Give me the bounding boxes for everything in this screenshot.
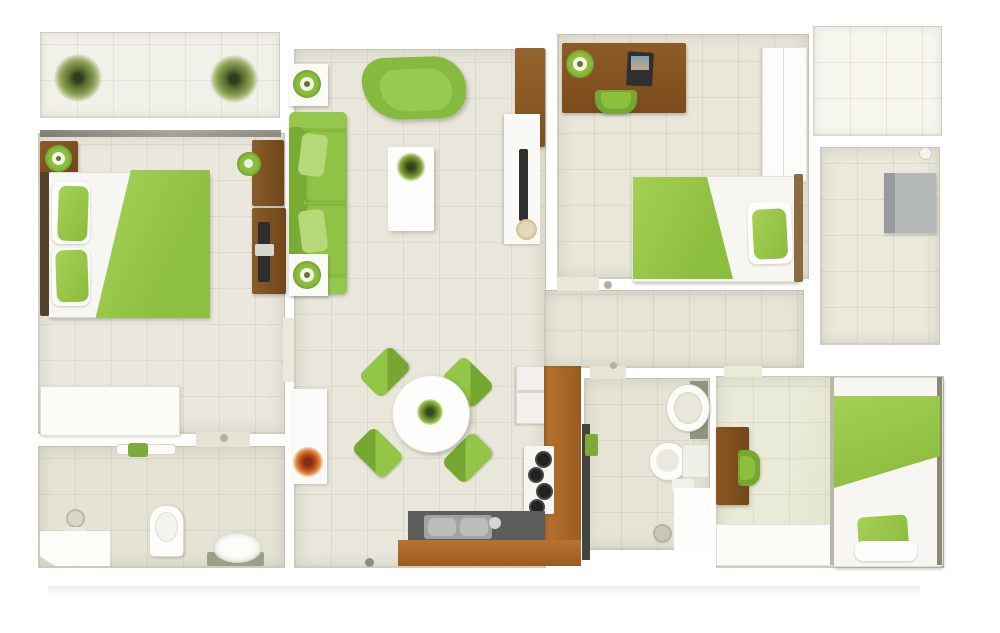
kitchen-sink-basin xyxy=(460,518,488,536)
dining-table-plant xyxy=(417,399,443,425)
bedroom2-desk-chair-seat xyxy=(601,92,631,109)
entry-door-knob xyxy=(365,558,374,567)
bathc-toilet-tank xyxy=(682,444,709,478)
utility-door-knob xyxy=(919,147,932,160)
living-sofa-pillow xyxy=(298,133,329,178)
master-curtain-rail xyxy=(40,130,281,137)
bedroom2-bed-frame xyxy=(794,174,803,282)
utility-cabinet-side xyxy=(884,173,895,233)
bath-left-towel xyxy=(128,443,148,457)
master-pillow-green xyxy=(57,185,89,241)
living-lamp-top-dot xyxy=(304,81,310,87)
kitchen-faucet xyxy=(489,517,501,529)
bath-left-sink-basin xyxy=(213,532,262,563)
master-lamp-top-dot xyxy=(56,156,61,161)
floor-corridor xyxy=(544,290,804,368)
door-opening-bedroom-bottom-right xyxy=(724,366,762,377)
bedroom3-desk-chair-seat xyxy=(740,456,755,480)
door-opening-bathroom-center xyxy=(590,366,626,379)
master-tv-bracket xyxy=(255,244,274,256)
living-coffee-table-plant xyxy=(396,152,426,182)
entry-flower-vase xyxy=(292,446,324,478)
bathc-basin-inner xyxy=(674,392,702,424)
bedroom3-closet xyxy=(716,524,838,566)
bedroom2-door-knob xyxy=(604,281,612,289)
bath-left-corner-block xyxy=(40,531,110,566)
bathc-towel xyxy=(585,434,598,456)
bedroom3-bed-frame-left xyxy=(830,377,834,565)
kitchen-burner xyxy=(528,467,544,483)
living-decor-bowl xyxy=(516,219,537,240)
bedroom2-wardrobe-line xyxy=(783,48,784,179)
master-dresser-lamp-dot xyxy=(244,159,253,168)
bathc-wall-block xyxy=(674,488,710,550)
balcony-plant xyxy=(54,54,102,102)
bath-left-toilet-seat xyxy=(155,512,178,542)
floor-plan xyxy=(0,0,1000,633)
master-bed-headboard xyxy=(40,172,49,316)
bedroom2-pillow-green xyxy=(752,208,789,260)
floor-balcony-top-right xyxy=(813,26,942,136)
kitchen-burner xyxy=(535,451,552,468)
plan-ground-shadow xyxy=(48,586,920,596)
master-door-knob xyxy=(220,434,228,442)
living-sofa-arm-top xyxy=(289,112,347,128)
master-wardrobe xyxy=(40,386,180,436)
bathc-shower-drain xyxy=(653,524,672,543)
kitchen-fridge-line xyxy=(518,390,545,393)
bath-left-shower-drain xyxy=(66,509,85,528)
living-chaise-seat xyxy=(379,68,452,112)
master-pillow-green xyxy=(55,249,89,302)
kitchen-burner xyxy=(536,483,553,500)
bedroom2-laptop-screen xyxy=(631,56,649,70)
door-opening-master-bedroom xyxy=(283,318,294,382)
living-sofa-pillow xyxy=(298,209,329,254)
door-opening-bedroom-top-right xyxy=(557,277,599,291)
bathc-toilet-seat xyxy=(656,449,679,472)
living-tv xyxy=(519,149,528,221)
balcony-plant xyxy=(210,55,258,103)
bedroom3-pillow-white xyxy=(855,541,917,561)
bedroom2-wardrobe xyxy=(762,47,807,182)
living-lamp-bottom-dot xyxy=(304,272,310,278)
bedroom2-desk-lamp-dot xyxy=(577,61,583,67)
kitchen-sink-basin xyxy=(428,518,456,536)
corridor-door-knob xyxy=(610,362,617,369)
kitchen-counter-bottom xyxy=(398,540,581,566)
